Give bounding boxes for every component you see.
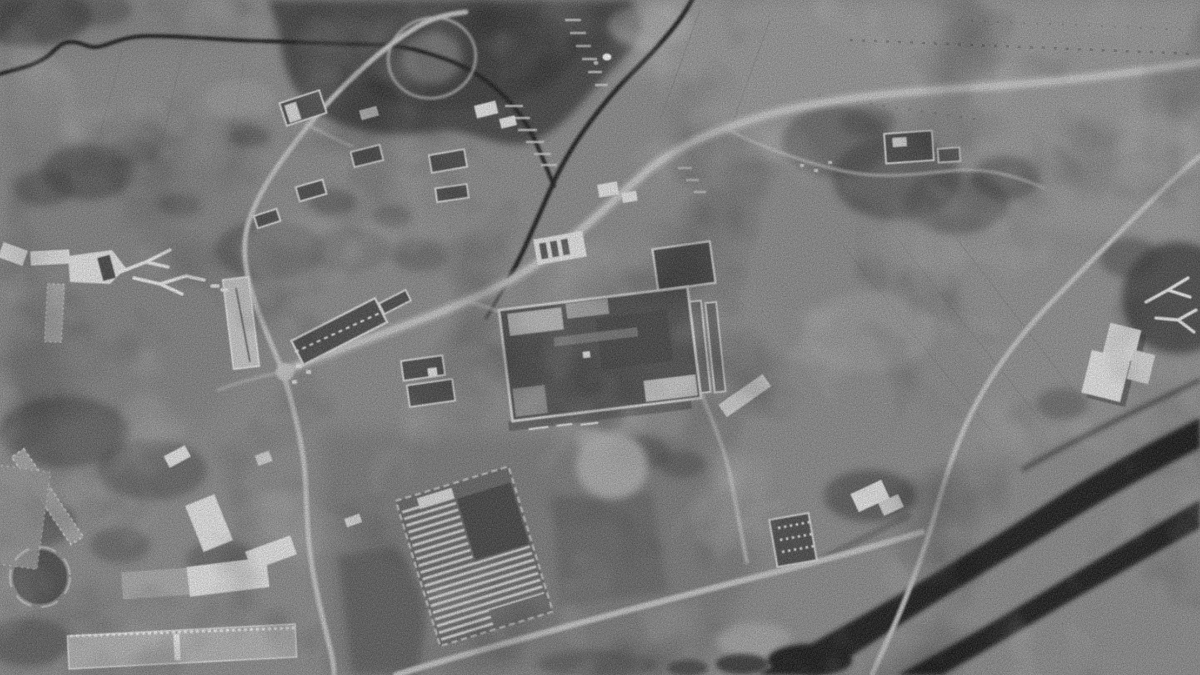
screenshot-root [0,0,1200,675]
satellite-photo-canvas [0,0,1200,675]
satellite-photo [0,0,1200,675]
film-grain [0,0,1200,675]
